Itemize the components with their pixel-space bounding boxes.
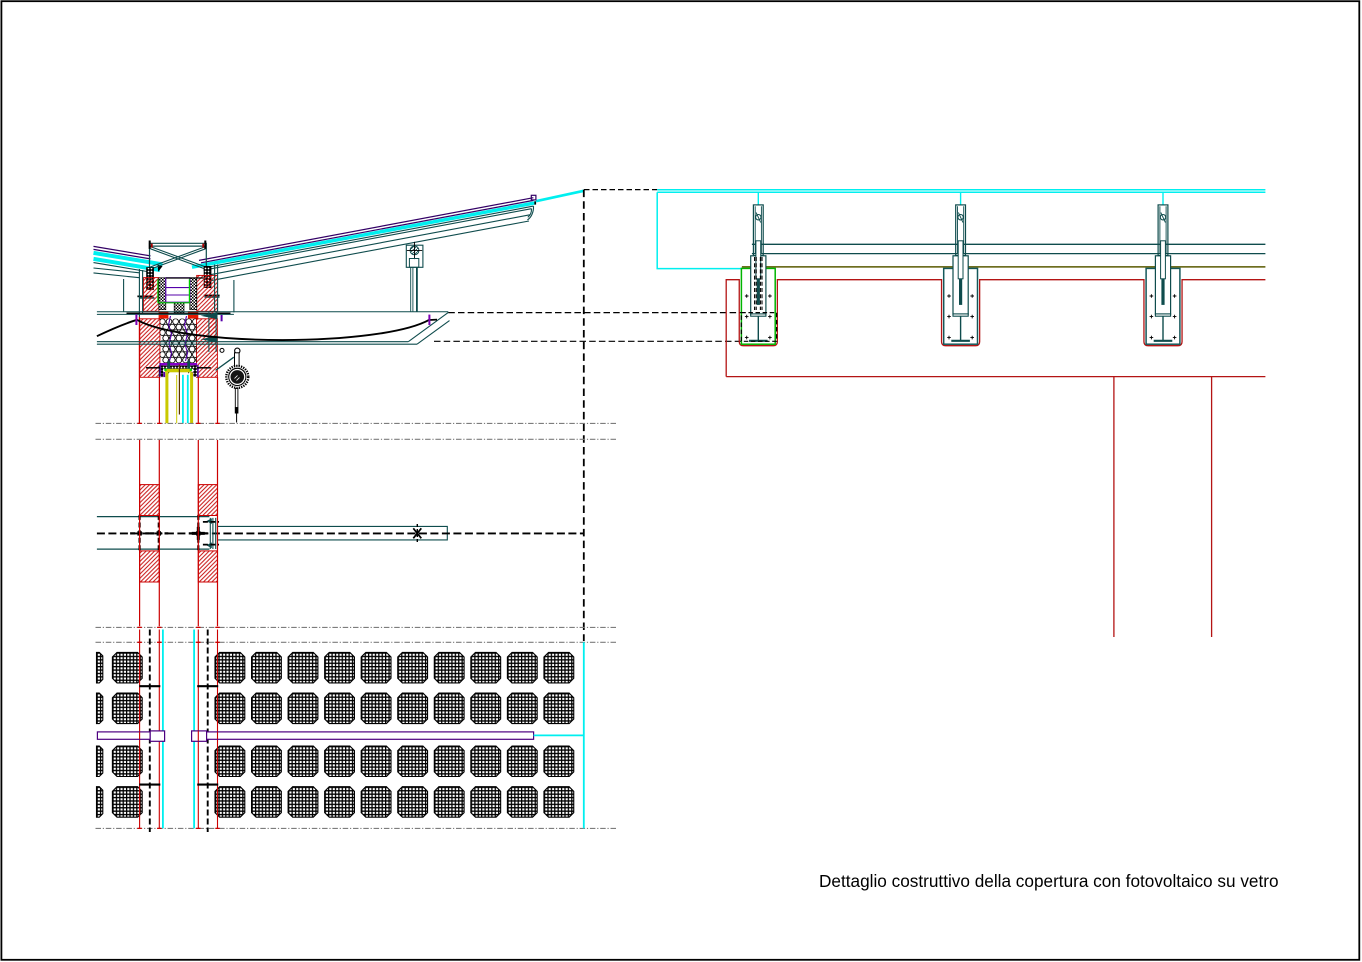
svg-text:Dettaglio costruttivo della co: Dettaglio costruttivo della copertura co… xyxy=(819,871,1279,891)
